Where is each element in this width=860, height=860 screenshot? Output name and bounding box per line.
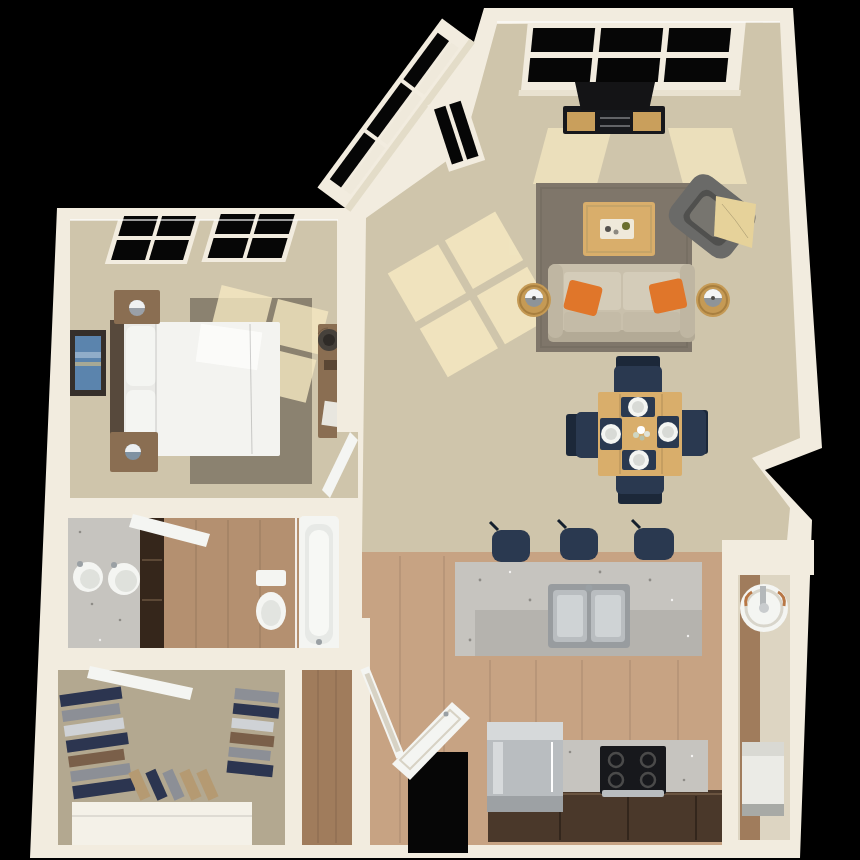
sofa bbox=[548, 264, 695, 342]
hall-kitchen-wall bbox=[352, 618, 370, 858]
bedroom-right-wall bbox=[337, 208, 358, 432]
water-heater bbox=[740, 584, 788, 632]
faucet-icon bbox=[111, 562, 117, 568]
console-door bbox=[567, 112, 595, 131]
walk-in-closet bbox=[58, 666, 285, 845]
oven-handle bbox=[602, 790, 664, 797]
wall-art bbox=[70, 330, 106, 396]
faucet-icon bbox=[586, 585, 593, 592]
side-table-right bbox=[696, 283, 730, 317]
tub-faucet-icon bbox=[316, 639, 322, 645]
bar-stool bbox=[560, 528, 598, 560]
floor-plan-render bbox=[0, 0, 860, 860]
refrigerator bbox=[487, 722, 563, 812]
bathroom-vanity bbox=[68, 518, 140, 652]
nightstand-bottom bbox=[110, 432, 158, 472]
hallway-floor bbox=[302, 660, 352, 845]
linen-cabinet bbox=[140, 518, 164, 652]
stove bbox=[600, 746, 666, 797]
floor-plan-svg bbox=[0, 0, 860, 860]
heater-pipe-icon bbox=[760, 586, 766, 606]
kitchen-counter-run bbox=[487, 722, 732, 842]
nightstand-top bbox=[114, 290, 160, 324]
tv bbox=[575, 82, 655, 110]
bathroom bbox=[68, 514, 339, 654]
utility-appliance bbox=[742, 742, 784, 816]
utility-left-wall bbox=[722, 548, 738, 845]
console-door bbox=[633, 112, 661, 131]
closet-dresser bbox=[72, 802, 252, 845]
coffee-table bbox=[583, 202, 655, 256]
bar-stool bbox=[634, 528, 674, 560]
bedroom-window-right bbox=[201, 210, 301, 262]
utility-closet bbox=[738, 575, 790, 840]
bar-stool bbox=[492, 530, 530, 562]
kitchen-island bbox=[455, 562, 702, 656]
door-knob-icon bbox=[444, 712, 449, 717]
bed-pillow-top bbox=[126, 326, 156, 386]
toilet bbox=[256, 570, 286, 630]
side-table-left bbox=[517, 283, 551, 317]
bathtub bbox=[299, 516, 339, 654]
closet-hall-wall bbox=[285, 668, 302, 858]
kitchen-sink bbox=[548, 584, 630, 648]
faucet-icon bbox=[77, 561, 83, 567]
tv-console bbox=[563, 82, 665, 134]
